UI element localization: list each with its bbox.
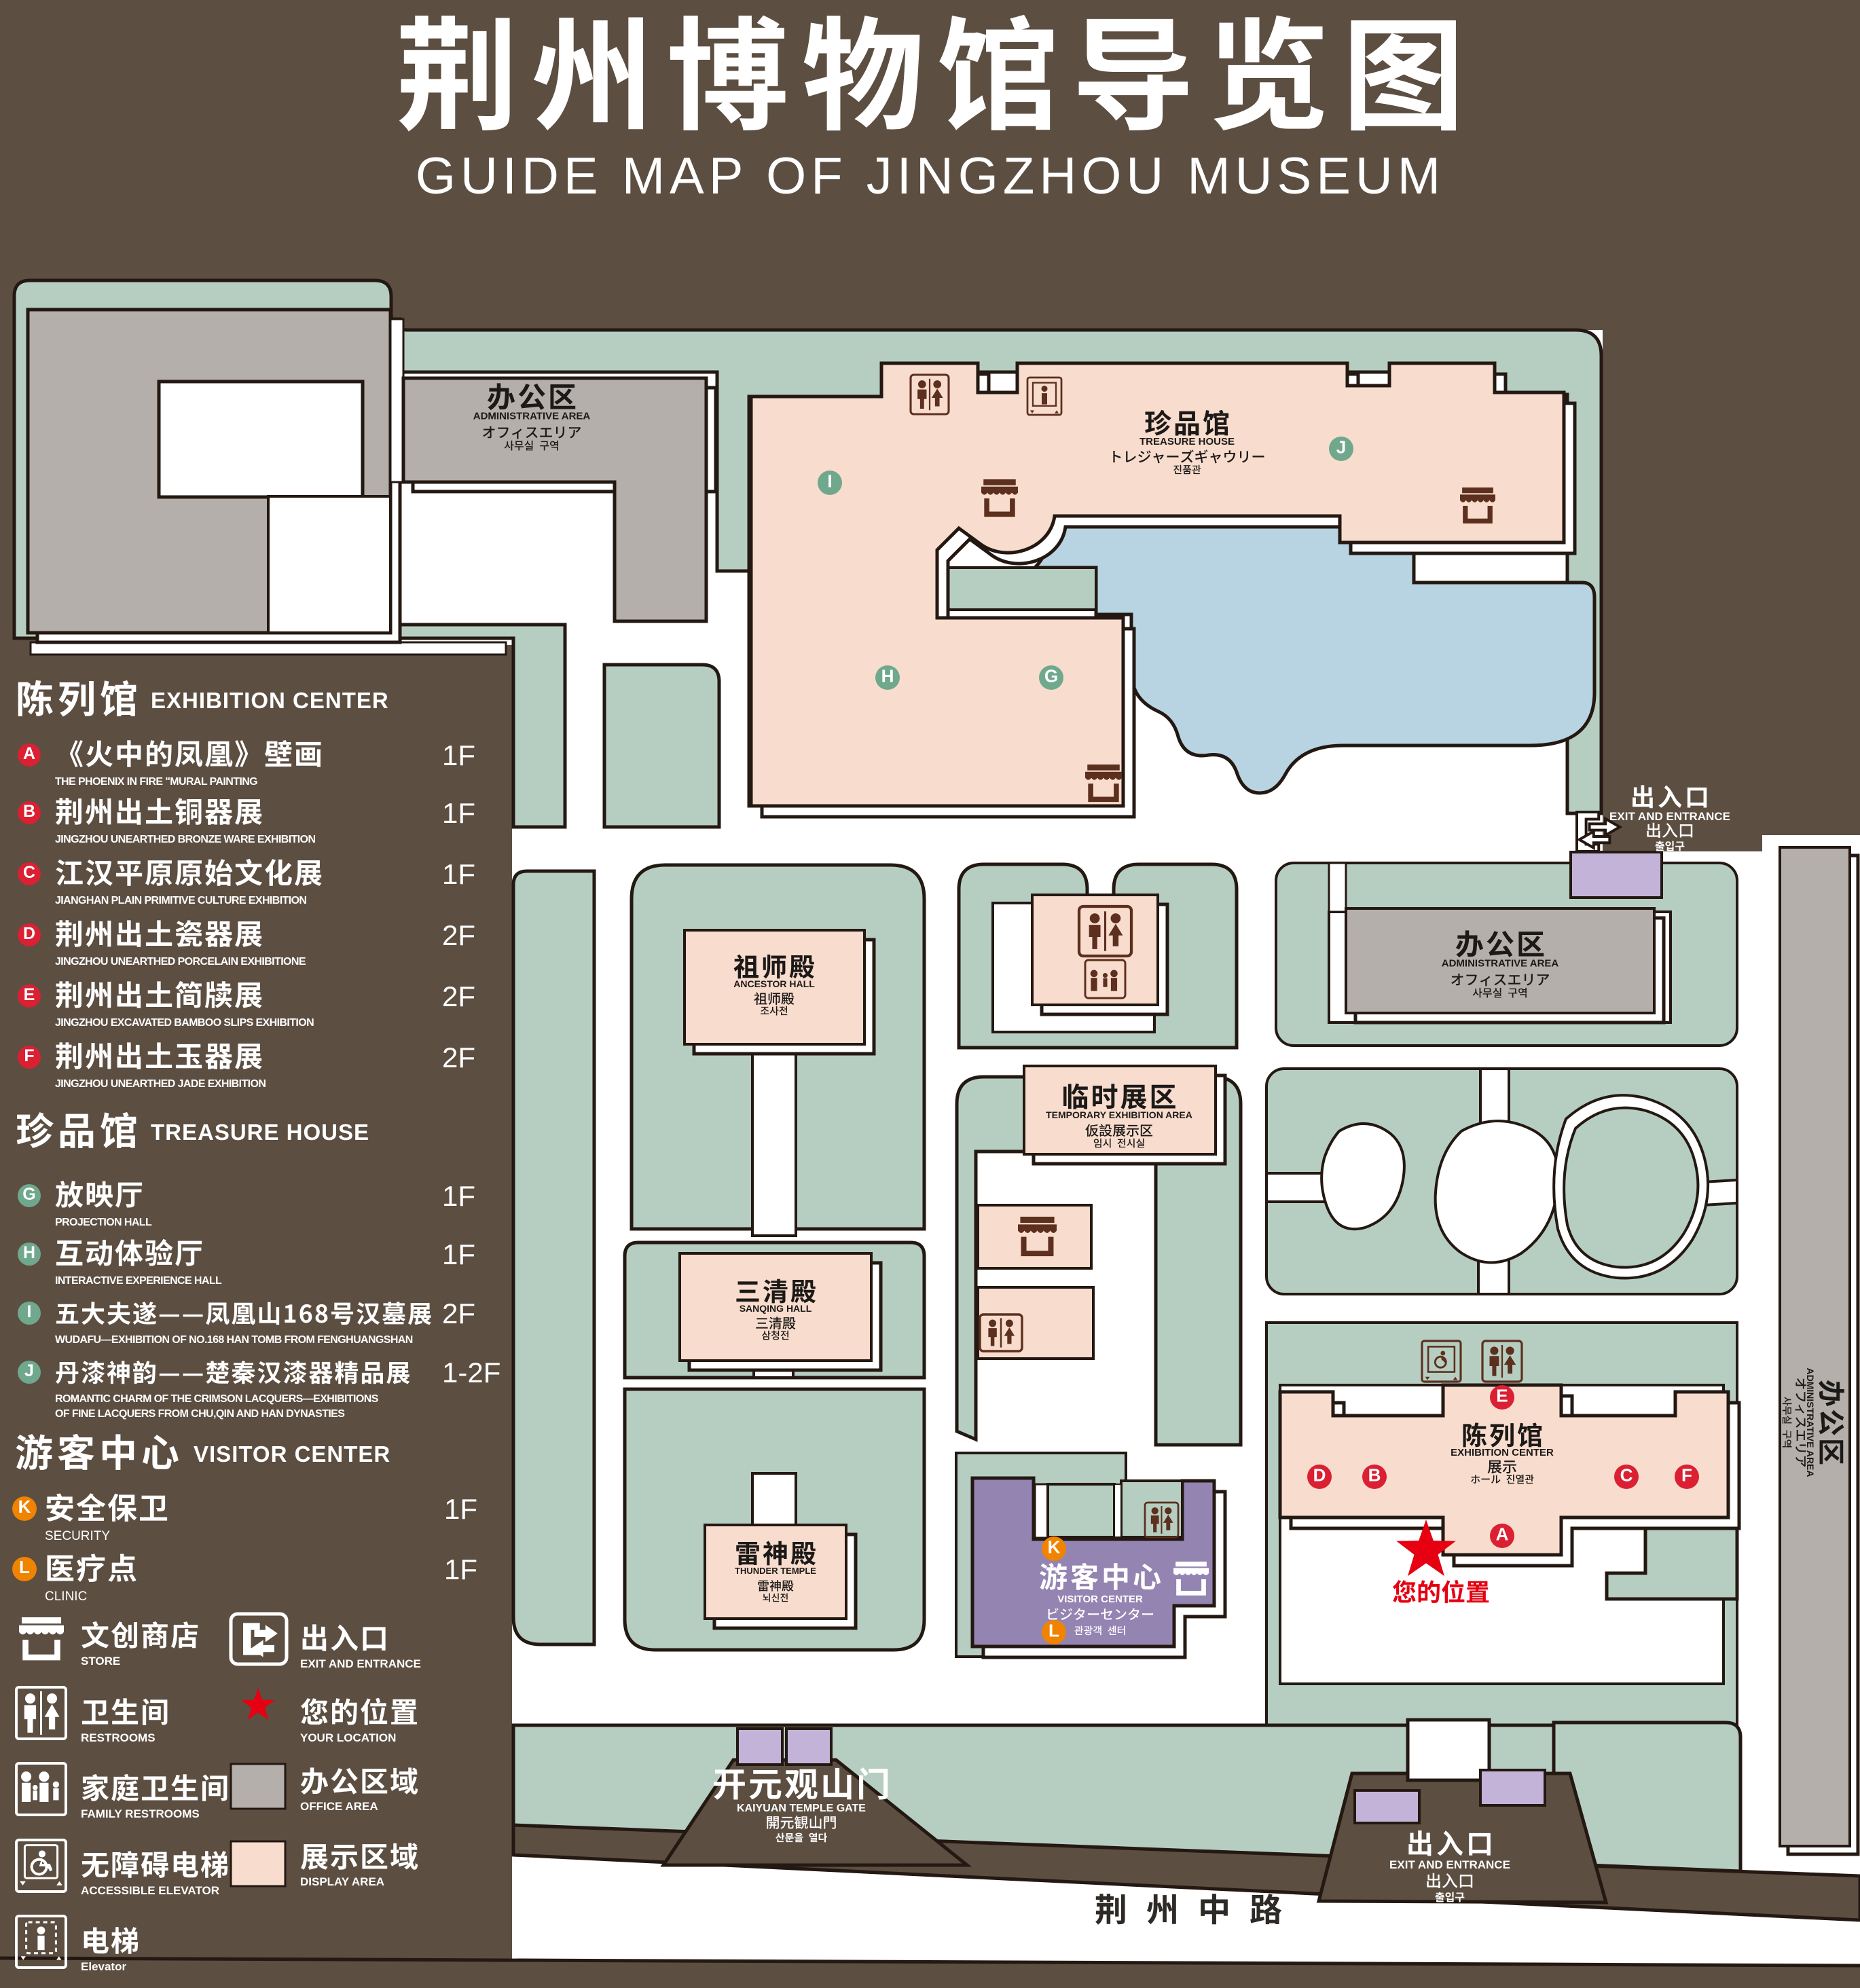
svg-text:I: I [27,1302,32,1321]
svg-text:YOUR LOCATION: YOUR LOCATION [300,1731,396,1744]
svg-text:H: H [881,665,894,686]
svg-text:THE PHOENIX IN FIRE "MURAL PAI: THE PHOENIX IN FIRE "MURAL PAINTING [55,776,257,788]
svg-text:ADMINISTRATIVE AREA: ADMINISTRATIVE AREA [1442,958,1559,970]
svg-text:J: J [1336,437,1347,457]
svg-text:KAIYUAN TEMPLE GATE: KAIYUAN TEMPLE GATE [737,1803,866,1814]
svg-text:I: I [827,471,832,491]
svg-text:INTERACTIVE EXPERIENCE HALL: INTERACTIVE EXPERIENCE HALL [55,1275,222,1287]
svg-text:TREASURE HOUSE: TREASURE HOUSE [1139,436,1235,447]
svg-text:2F: 2F [442,919,475,951]
svg-text:K: K [1048,1536,1061,1557]
svg-text:1F: 1F [442,858,475,890]
svg-text:ADMINISTRATIVE AREA: ADMINISTRATIVE AREA [473,411,591,422]
svg-text:G: G [22,1185,35,1204]
svg-text:ROMANTIC CHARM OF THE CRIMSON: ROMANTIC CHARM OF THE CRIMSON LACQUERS—E… [55,1393,379,1405]
svg-text:EXIT AND ENTRANCE: EXIT AND ENTRANCE [1609,810,1730,823]
svg-text:Elevator: Elevator [81,1960,126,1973]
svg-text:A: A [1496,1524,1509,1544]
svg-text:DISPLAY AREA: DISPLAY AREA [300,1875,384,1888]
svg-text:K: K [18,1496,31,1517]
svg-text:ANCESTOR HALL: ANCESTOR HALL [733,978,815,989]
svg-text:1F: 1F [444,1493,477,1525]
svg-text:JIANGHAN PLAIN PRIMITIVE CULTU: JIANGHAN PLAIN PRIMITIVE CULTURE EXHIBIT… [55,895,306,906]
svg-text:JINGZHOU UNEARTHED BRONZE WARE: JINGZHOU UNEARTHED BRONZE WARE EXHIBITIO… [55,834,315,845]
svg-text:L: L [19,1557,30,1577]
svg-text:E: E [1496,1385,1508,1405]
svg-text:E: E [24,985,35,1004]
svg-text:EXHIBITION CENTER: EXHIBITION CENTER [1451,1447,1554,1458]
svg-text:VISITOR CENTER: VISITOR CENTER [1057,1594,1143,1605]
svg-text:D: D [1313,1465,1326,1485]
svg-text:G: G [1044,665,1058,686]
svg-text:D: D [23,924,35,943]
svg-text:FAMILY RESTROOMS: FAMILY RESTROOMS [81,1807,200,1820]
svg-text:PROJECTION HALL: PROJECTION HALL [55,1217,152,1228]
svg-text:OF FINE LACQUERS FROM CHU,QIN: OF FINE LACQUERS FROM CHU,QIN AND HAN DY… [55,1408,345,1420]
svg-text:2F: 2F [442,1042,475,1073]
svg-text:THUNDER TEMPLE: THUNDER TEMPLE [735,1566,816,1576]
svg-text:2F: 2F [442,1297,475,1329]
svg-text:VISITOR CENTER: VISITOR CENTER [194,1441,390,1467]
svg-text:SANQING HALL: SANQING HALL [740,1303,812,1314]
svg-text:RESTROOMS: RESTROOMS [81,1731,156,1744]
svg-text:CLINIC: CLINIC [45,1589,87,1604]
svg-text:1F: 1F [442,739,475,771]
svg-text:A: A [23,744,35,763]
svg-text:C: C [23,863,35,882]
svg-text:J: J [24,1361,34,1380]
svg-text:F: F [24,1046,34,1065]
svg-text:1F: 1F [442,1238,475,1270]
svg-text:JINGZHOU UNEARTHED JADE EXHIBI: JINGZHOU UNEARTHED JADE EXHIBITION [55,1078,266,1090]
svg-text:B: B [23,802,35,821]
svg-text:1F: 1F [442,1180,475,1212]
svg-text:JINGZHOU UNEARTHED PORCELAIN E: JINGZHOU UNEARTHED PORCELAIN EXHIBITIONE [55,956,306,968]
svg-text:TREASURE HOUSE: TREASURE HOUSE [151,1120,369,1145]
svg-text:EXIT AND ENTRANCE: EXIT AND ENTRANCE [1389,1858,1510,1871]
svg-text:1-2F: 1-2F [442,1357,500,1388]
svg-text:STORE: STORE [81,1655,120,1668]
svg-text:H: H [23,1243,35,1262]
svg-text:OFFICE AREA: OFFICE AREA [300,1800,378,1813]
svg-text:GUIDE MAP OF JINGZHOU MUSEUM: GUIDE MAP OF JINGZHOU MUSEUM [416,147,1445,205]
svg-text:1F: 1F [444,1553,477,1585]
svg-text:C: C [1620,1465,1633,1485]
svg-text:EXIT AND ENTRANCE: EXIT AND ENTRANCE [300,1657,421,1670]
svg-text:ACCESSIBLE ELEVATOR: ACCESSIBLE ELEVATOR [81,1884,219,1897]
svg-text:2F: 2F [442,980,475,1012]
svg-text:WUDAFU—EXHIBITION OF NO.168 HA: WUDAFU—EXHIBITION OF NO.168 HAN TOMB FRO… [55,1334,413,1346]
svg-text:1F: 1F [442,797,475,829]
svg-text:F: F [1681,1465,1692,1485]
svg-text:TEMPORARY EXHIBITION AREA: TEMPORARY EXHIBITION AREA [1046,1109,1192,1120]
svg-text:EXHIBITION CENTER: EXHIBITION CENTER [151,688,389,713]
svg-text:SECURITY: SECURITY [45,1529,110,1543]
svg-text:JINGZHOU EXCAVATED BAMBOO SLIP: JINGZHOU EXCAVATED BAMBOO SLIPS EXHIBITI… [55,1017,314,1029]
svg-text:ADMINISTRATIVE AREA: ADMINISTRATIVE AREA [1805,1368,1816,1477]
svg-text:L: L [1048,1620,1059,1640]
svg-text:B: B [1368,1465,1381,1485]
